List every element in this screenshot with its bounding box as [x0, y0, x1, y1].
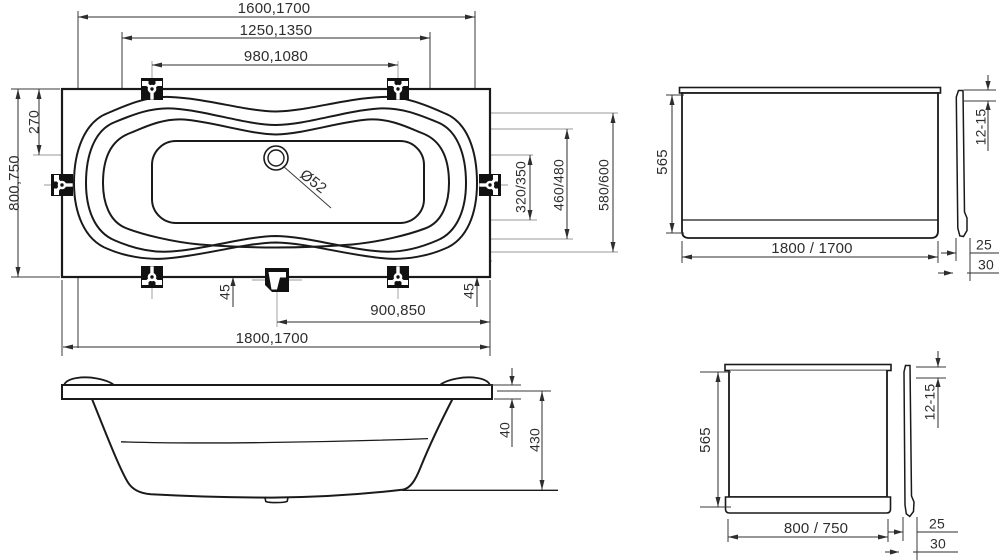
panel-body: [729, 371, 887, 498]
waterline: [121, 439, 428, 443]
front-panel-view: [666, 75, 999, 281]
end-panel-view: [700, 351, 958, 560]
support-bracket-icon: [51, 174, 73, 196]
support-bracket-icon: [387, 266, 409, 288]
side-dimension-lines: [509, 368, 542, 490]
plan-view: [11, 11, 618, 356]
rim-bar: [62, 385, 492, 399]
support-bracket-icon: [141, 266, 163, 288]
panel-bottom-strip: [726, 497, 891, 513]
waste-fitting-icon: [265, 268, 289, 292]
support-bracket-icon: [141, 78, 163, 100]
panel-side-profile: [956, 91, 967, 237]
panel-top-cap: [725, 365, 891, 371]
support-bracket-icon: [479, 174, 501, 196]
bathtub-technical-drawing: 1600,1700 1250,1350 980,1080 800,750 270…: [0, 0, 1000, 560]
panel-body: [682, 93, 938, 238]
side-view: [62, 368, 558, 503]
panel-side-profile: [904, 366, 914, 517]
drawing-svg: [0, 0, 1000, 560]
support-bracket-icon: [387, 78, 409, 100]
